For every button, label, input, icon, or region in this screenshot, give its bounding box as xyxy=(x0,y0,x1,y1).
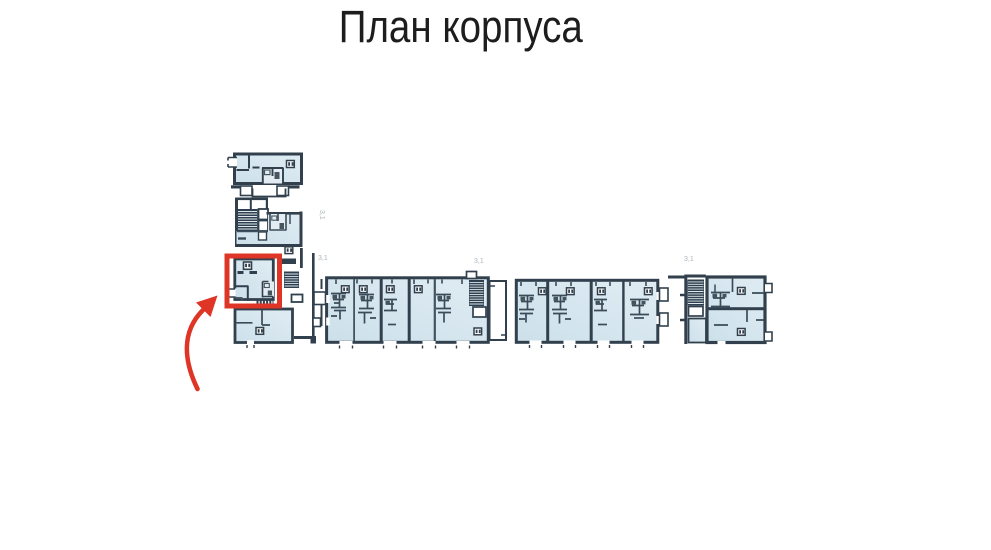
svg-text:3,1: 3,1 xyxy=(318,210,325,220)
svg-text:План корпуса: План корпуса xyxy=(339,1,584,52)
svg-text:3,1: 3,1 xyxy=(684,256,694,263)
svg-text:3,1: 3,1 xyxy=(318,255,328,262)
svg-text:3,1: 3,1 xyxy=(474,258,484,265)
